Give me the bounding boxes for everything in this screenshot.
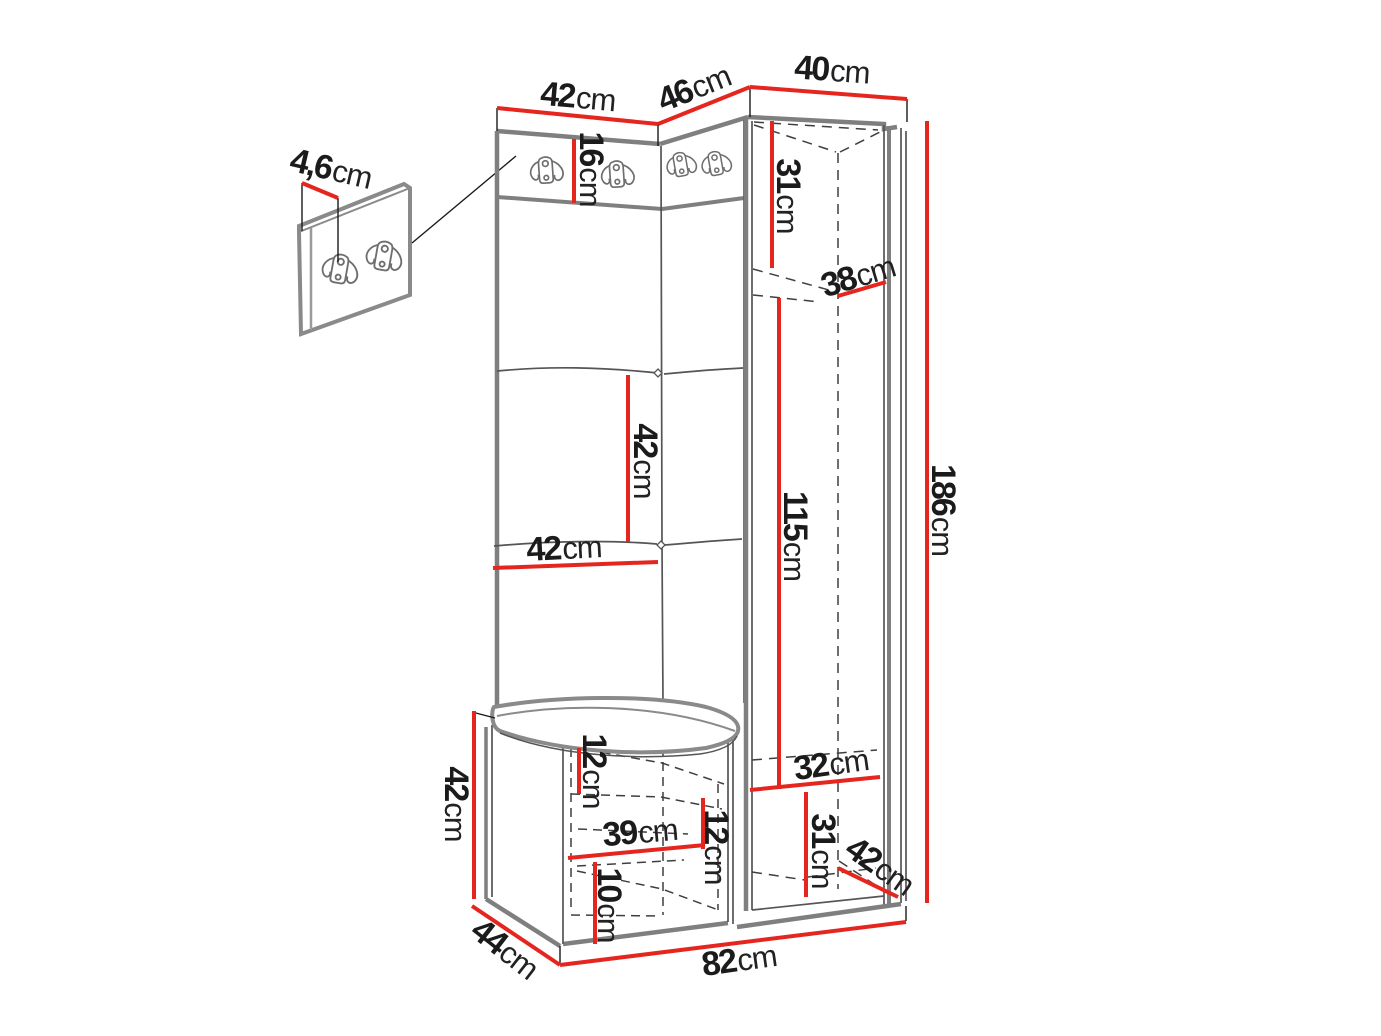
dim-line-width-82 [560,922,906,965]
dim-line-detail-thickness [302,183,338,198]
dim-line-top-40 [750,87,907,99]
dim-line-depth-38 [838,282,886,296]
hook-panel-left [494,117,748,712]
seat-cushion [492,698,738,757]
double-coat-hook-icon [601,160,635,188]
storage-bench [486,725,733,946]
hook-board-detail-inset [299,184,410,334]
wardrobe-cabinet [737,117,906,927]
dim-line-width-32 [750,777,880,790]
dim-line-width-39 [568,845,705,858]
dim-line-top-42 [497,108,658,124]
detail-leader-line [412,156,516,243]
furniture-dimension-diagram: 4,6cm 42cm 46cm 40cm 16cm 31cm 38cm 42cm… [0,0,1381,1036]
double-coat-hook-icon [700,149,733,177]
double-coat-hook-icon [665,150,698,178]
dim-line-mid-42-h [493,562,658,568]
diagram-drawing [0,0,1381,1036]
double-coat-hook-icon [530,156,564,184]
